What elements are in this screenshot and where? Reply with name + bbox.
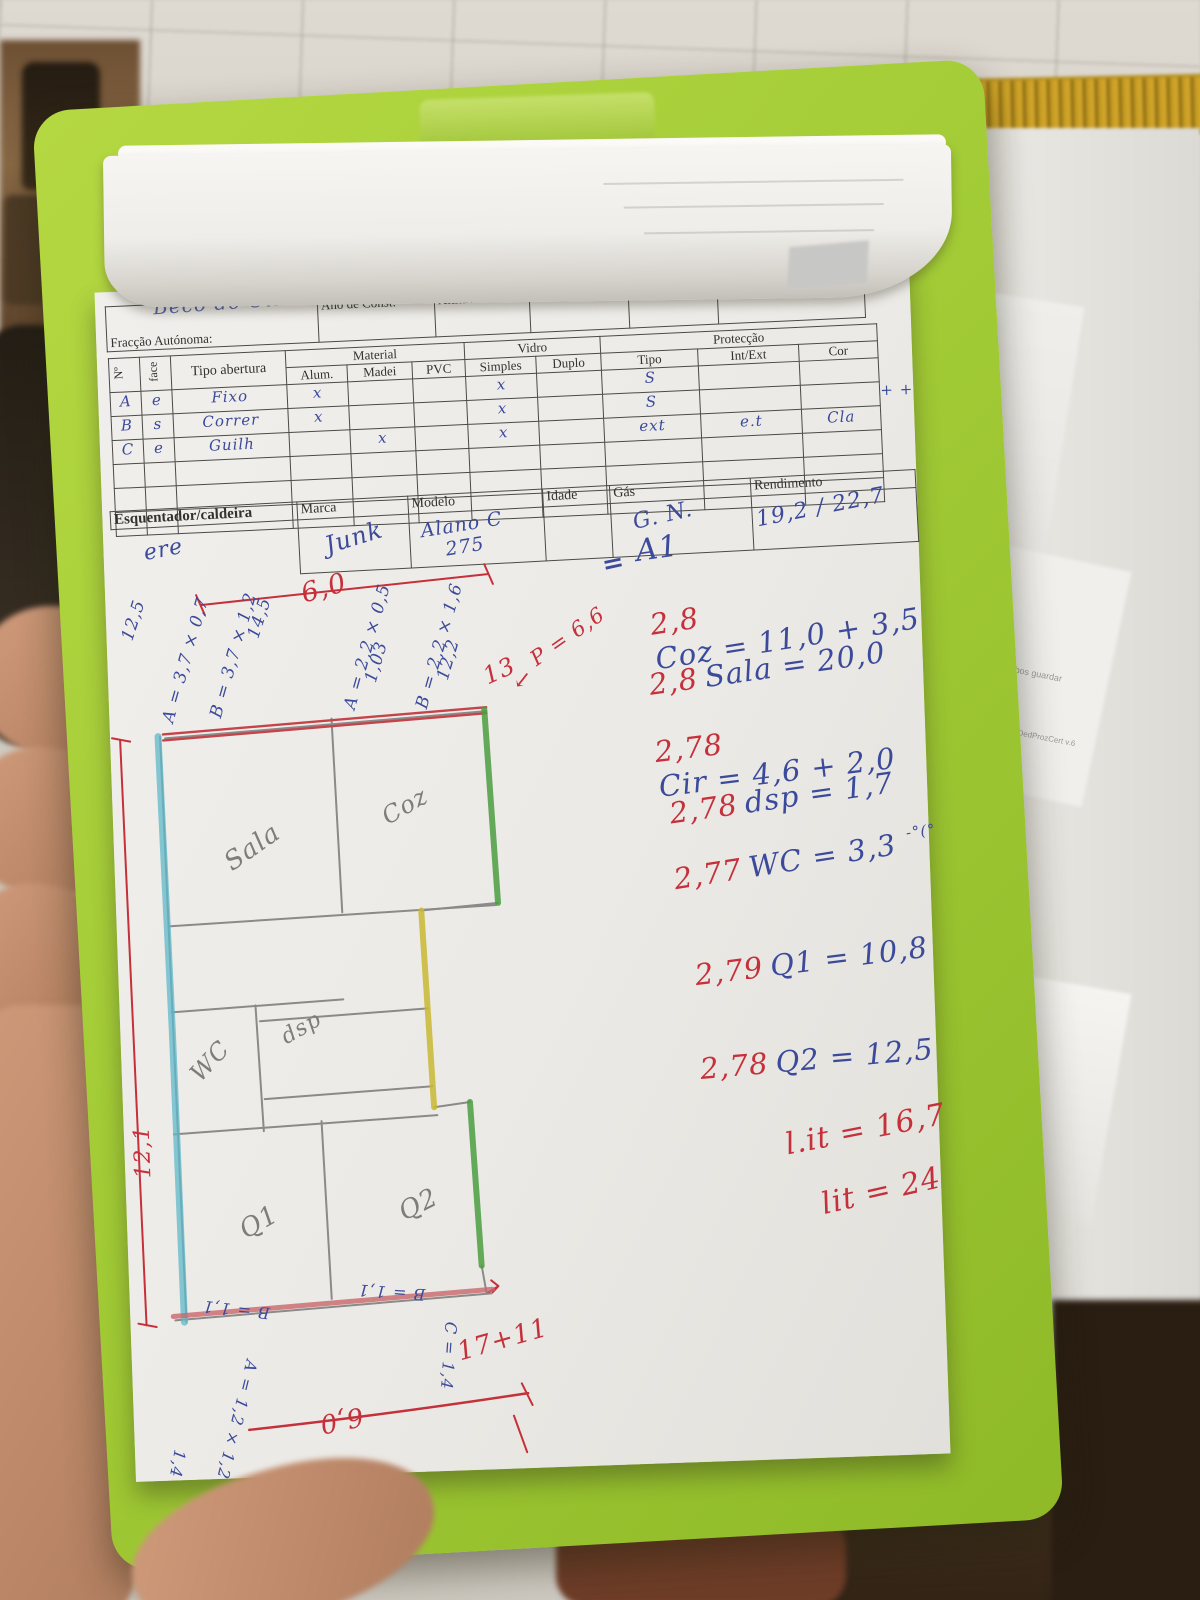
hw-value: e xyxy=(154,439,165,457)
dark-floor-corner xyxy=(1052,1300,1200,1600)
hw-value: s xyxy=(153,415,163,433)
sub-madei-label: Madei xyxy=(363,363,397,379)
hw-value: Cla xyxy=(827,407,856,426)
hw-value: C xyxy=(121,440,134,459)
cell: Cla xyxy=(801,406,881,434)
calc-blue: Q1 = 10,8 xyxy=(768,930,929,983)
field-label: Fracção Autónoma: xyxy=(110,331,213,351)
group-proteccao-label: Protecção xyxy=(713,329,765,346)
calc-red: 2,78 xyxy=(699,1046,770,1086)
sub-duplo-label: Duplo xyxy=(552,355,585,371)
col-tipo-abertura: Tipo abertura xyxy=(170,351,286,390)
cell: e xyxy=(143,438,175,463)
kitchen-scene: 9 35 ambos guardar MobiDedProzCert v.6 F… xyxy=(0,0,1200,1600)
col-no: Nº xyxy=(108,357,141,392)
wall-sala-coz xyxy=(331,718,342,912)
hw-value: B xyxy=(121,416,134,435)
wall-bedrooms-top xyxy=(174,1115,438,1134)
calc-blue: WC = 3,3 xyxy=(746,827,898,884)
ghost-line xyxy=(624,203,884,209)
margin-note: + + xyxy=(880,380,914,399)
empty-cell xyxy=(113,463,145,488)
heater-header: Gás xyxy=(613,485,636,501)
empty-cell xyxy=(290,454,352,481)
dim-bottom xyxy=(248,1393,529,1430)
wall-wc-right xyxy=(255,1005,263,1131)
wall-q1-q2 xyxy=(322,1121,332,1299)
hw-value: Correr xyxy=(202,410,260,431)
cell: e xyxy=(141,390,173,415)
sub-cor-label: Cor xyxy=(828,343,848,359)
gray-tag xyxy=(787,240,869,289)
pencil-walls xyxy=(155,711,513,1322)
group-vidro-label: Vidro xyxy=(517,339,547,355)
ghost-line xyxy=(603,179,903,185)
calc-line: 2,78 Q2 = 12,5 xyxy=(699,1032,936,1087)
calc-total-1: l.it = 16,7 xyxy=(782,1097,948,1162)
ghost-line xyxy=(644,229,874,234)
calc-red: 2,79 xyxy=(693,950,765,992)
cell: x xyxy=(288,406,350,433)
empty-cell xyxy=(351,451,417,478)
wall-right-green-lower xyxy=(470,1102,482,1266)
survey-sheet: Fracção Autónoma: Ano de Const: Altitude… xyxy=(94,264,950,1482)
hw-value: S xyxy=(645,392,657,410)
empty-cell xyxy=(469,445,541,472)
calc-line: 2,79 Q1 = 10,8 xyxy=(693,930,930,993)
cell: x xyxy=(467,397,539,424)
wall-right-green-upper xyxy=(484,709,498,903)
heater-header: Modelo xyxy=(411,494,455,511)
floor-plan-drawing xyxy=(104,533,696,1482)
calc-blue: Q2 = 12,5 xyxy=(774,1032,935,1080)
wall-corridor-top xyxy=(168,905,496,926)
calc-line: 2,77 WC = 3,3 xyxy=(671,827,898,897)
empty-cell xyxy=(416,448,470,474)
col-tipo-label: Tipo abertura xyxy=(191,361,267,379)
cell: 19,2 / 22,7 xyxy=(751,488,919,551)
calc-red: 2,8 xyxy=(647,661,700,702)
arrow-icon: ↙ xyxy=(512,667,534,694)
heater-header: Idade xyxy=(546,488,578,505)
empty-cell xyxy=(802,430,882,458)
heater-header: Rendimento xyxy=(754,475,823,494)
sub-pvc-label: PVC xyxy=(426,361,452,377)
hw-value: A xyxy=(120,392,133,411)
hw-value: e.t xyxy=(740,412,763,431)
group-material-label: Material xyxy=(353,346,398,363)
hw-value: S xyxy=(644,368,656,386)
wall-dsp-top xyxy=(260,1008,428,1021)
cell: B xyxy=(111,415,143,440)
cell: x xyxy=(466,373,538,400)
hw-value: x xyxy=(496,375,506,393)
empty-cell xyxy=(540,442,606,469)
calc-total-2: lit = 24 xyxy=(818,1160,944,1221)
hw-value: Guilh xyxy=(209,435,256,455)
cell xyxy=(799,358,879,386)
wall-dsp-bottom xyxy=(264,1086,432,1099)
calc-red: 2,77 xyxy=(671,852,744,896)
empty-cell xyxy=(144,462,176,487)
wall-step2 xyxy=(434,1102,470,1107)
hw-value: x xyxy=(313,384,323,402)
cell xyxy=(539,418,605,445)
cell xyxy=(413,376,467,402)
hw-value: x xyxy=(498,423,508,441)
cell xyxy=(348,379,414,406)
cell xyxy=(538,394,604,421)
heater-header: Marca xyxy=(300,500,337,517)
col-face-label: face xyxy=(146,361,162,382)
col-no-label: Nº xyxy=(111,367,127,380)
col-face: face xyxy=(139,356,172,391)
cell xyxy=(800,382,880,410)
cell xyxy=(349,403,415,430)
hw-value: x xyxy=(497,399,507,417)
calc-title: A1 xyxy=(634,528,681,569)
hw-value: e xyxy=(151,391,162,409)
sub-intext-label: Int/Ext xyxy=(730,346,767,363)
sub-alum-label: Alum. xyxy=(300,366,334,382)
hw-value: Fixo xyxy=(211,387,248,407)
wc-note: -°(° xyxy=(905,820,937,842)
cell xyxy=(414,400,468,426)
cell: A xyxy=(110,391,142,416)
cell xyxy=(536,370,602,397)
hw-value: ext xyxy=(639,416,666,435)
wall-wc-top xyxy=(171,999,343,1012)
cell: x xyxy=(350,427,416,454)
cell: C xyxy=(112,439,144,464)
cell: s xyxy=(142,414,174,439)
sub-tipo-label: Tipo xyxy=(637,351,662,367)
cell: x xyxy=(468,421,540,448)
cell xyxy=(415,424,469,450)
wall-left-cyan xyxy=(158,736,184,1322)
cell: x xyxy=(287,382,349,409)
hw-value: x xyxy=(378,429,388,447)
sub-simples-label: Simples xyxy=(479,357,522,374)
cell xyxy=(289,430,351,457)
hw-value: x xyxy=(314,407,324,425)
dim-left-total: 12,1 xyxy=(130,1125,157,1179)
